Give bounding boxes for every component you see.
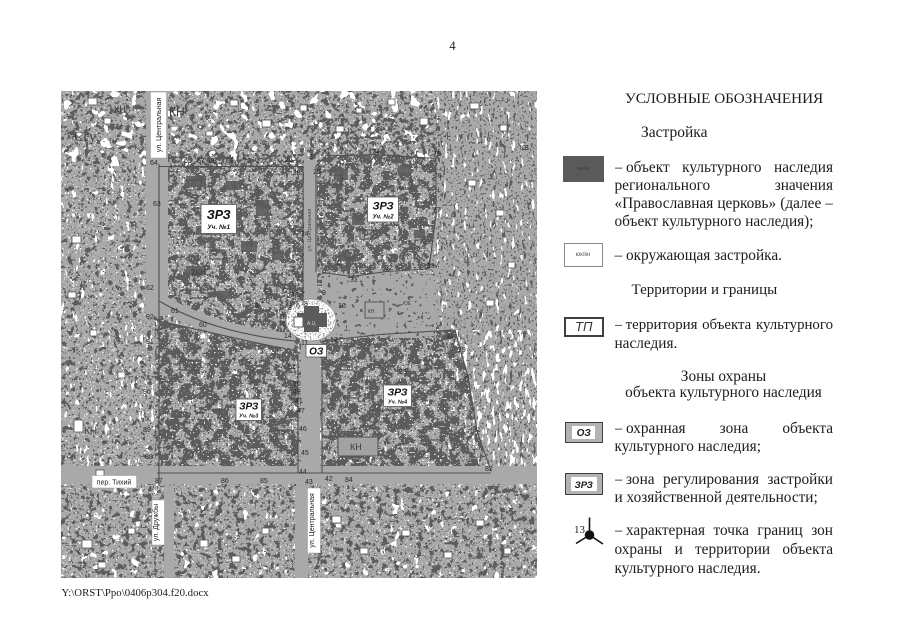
svg-text:КН: КН bbox=[169, 105, 185, 119]
svg-text:87: 87 bbox=[155, 478, 163, 485]
svg-text:Уч. №2: Уч. №2 bbox=[372, 214, 394, 221]
svg-text:71: 71 bbox=[243, 158, 251, 165]
svg-text:47: 47 bbox=[297, 408, 305, 415]
svg-text:73: 73 bbox=[322, 149, 330, 156]
svg-text:8: 8 bbox=[304, 301, 308, 308]
svg-text:ул. Центральная: ул. Центральная bbox=[156, 98, 163, 153]
svg-text:76: 76 bbox=[434, 173, 442, 180]
svg-text:13: 13 bbox=[347, 273, 355, 280]
svg-text:ул. Центральная: ул. Центральная bbox=[309, 493, 316, 548]
svg-text:34: 34 bbox=[446, 334, 454, 341]
svg-text:КН: КН bbox=[350, 442, 362, 452]
svg-text:85: 85 bbox=[260, 478, 268, 485]
svg-text:82: 82 bbox=[485, 466, 493, 473]
svg-text:42: 42 bbox=[325, 476, 333, 483]
svg-text:КВ: КВ bbox=[520, 145, 529, 152]
svg-text:68: 68 bbox=[209, 158, 217, 165]
svg-text:13: 13 bbox=[574, 524, 586, 536]
svg-text:3: 3 bbox=[288, 305, 292, 312]
svg-text:15: 15 bbox=[278, 321, 286, 328]
svg-text:26: 26 bbox=[285, 157, 293, 164]
svg-text:9: 9 bbox=[322, 290, 326, 297]
svg-text:84: 84 bbox=[345, 477, 353, 484]
svg-text:81: 81 bbox=[473, 427, 481, 434]
svg-text:10: 10 bbox=[338, 303, 346, 310]
svg-text:90: 90 bbox=[143, 389, 151, 396]
svg-text:27: 27 bbox=[309, 154, 317, 161]
svg-text:67: 67 bbox=[197, 158, 205, 165]
svg-text:35: 35 bbox=[399, 369, 407, 376]
svg-text:25: 25 bbox=[313, 169, 321, 176]
svg-text:69: 69 bbox=[226, 158, 234, 165]
svg-text:ОЗ: ОЗ bbox=[309, 347, 324, 358]
svg-text:77: 77 bbox=[433, 207, 441, 214]
svg-text:75: 75 bbox=[433, 151, 441, 158]
svg-text:Сгу: Сгу bbox=[74, 130, 96, 145]
svg-text:64: 64 bbox=[150, 160, 158, 167]
svg-text:79: 79 bbox=[458, 347, 466, 354]
svg-text:80: 80 bbox=[464, 374, 472, 381]
svg-text:52: 52 bbox=[288, 364, 296, 371]
svg-text:61: 61 bbox=[171, 308, 179, 315]
svg-text:43: 43 bbox=[305, 479, 313, 486]
svg-text:50: 50 bbox=[293, 381, 301, 388]
svg-text:41: 41 bbox=[295, 398, 303, 405]
svg-text:65: 65 bbox=[184, 158, 192, 165]
svg-text:Уч. №4: Уч. №4 bbox=[388, 400, 407, 406]
svg-text:44: 44 bbox=[299, 469, 307, 476]
svg-text:7: 7 bbox=[301, 291, 305, 298]
svg-text:72: 72 bbox=[256, 158, 264, 165]
svg-text:6: 6 bbox=[296, 303, 300, 310]
svg-text:14: 14 bbox=[284, 333, 292, 340]
svg-text:12: 12 bbox=[330, 337, 338, 344]
svg-text:88: 88 bbox=[145, 454, 153, 461]
svg-text:А.Ц: А.Ц bbox=[307, 321, 316, 327]
svg-text:пер. Тихий: пер. Тихий bbox=[97, 479, 132, 487]
svg-text:49: 49 bbox=[293, 389, 301, 396]
svg-text:КН: КН bbox=[114, 104, 126, 114]
svg-text:ЗРЗ: ЗРЗ bbox=[207, 208, 231, 222]
svg-text:74: 74 bbox=[372, 149, 380, 156]
svg-text:92: 92 bbox=[146, 314, 154, 321]
svg-text:4: 4 bbox=[291, 292, 295, 299]
svg-text:ул. Дружбы: ул. Дружбы bbox=[152, 504, 160, 541]
svg-text:29: 29 bbox=[324, 221, 332, 228]
svg-text:ЗРЗ: ЗРЗ bbox=[239, 402, 259, 413]
svg-text:16: 16 bbox=[279, 314, 287, 321]
svg-text:20: 20 bbox=[262, 298, 270, 305]
svg-text:19: 19 bbox=[251, 303, 259, 310]
svg-text:Уч. №3: Уч. №3 bbox=[239, 414, 258, 420]
svg-text:2КН: 2КН bbox=[191, 268, 206, 277]
svg-text:28: 28 bbox=[293, 170, 301, 177]
svg-text:63: 63 bbox=[153, 201, 161, 208]
svg-text:62: 62 bbox=[146, 285, 154, 292]
svg-text:86: 86 bbox=[221, 478, 229, 485]
svg-text:5: 5 bbox=[296, 292, 300, 299]
svg-text:30: 30 bbox=[333, 260, 341, 267]
svg-text:91: 91 bbox=[146, 339, 154, 346]
svg-text:60: 60 bbox=[199, 322, 207, 329]
svg-text:32: 32 bbox=[385, 265, 393, 272]
svg-text:33: 33 bbox=[427, 263, 435, 270]
svg-text:ЮК: ЮК bbox=[403, 301, 411, 307]
svg-text:ЗРЗ: ЗРЗ bbox=[372, 201, 393, 213]
svg-text:ул. Центральная: ул. Центральная bbox=[307, 209, 313, 252]
svg-text:89: 89 bbox=[143, 427, 151, 434]
svg-text:КН: КН bbox=[84, 426, 97, 437]
svg-text:Уч. №1: Уч. №1 bbox=[207, 224, 230, 231]
svg-text:ЗРЗ: ЗРЗ bbox=[387, 387, 407, 399]
svg-text:КН: КН bbox=[368, 309, 375, 315]
svg-text:46: 46 bbox=[299, 426, 307, 433]
svg-text:45: 45 bbox=[301, 450, 309, 457]
